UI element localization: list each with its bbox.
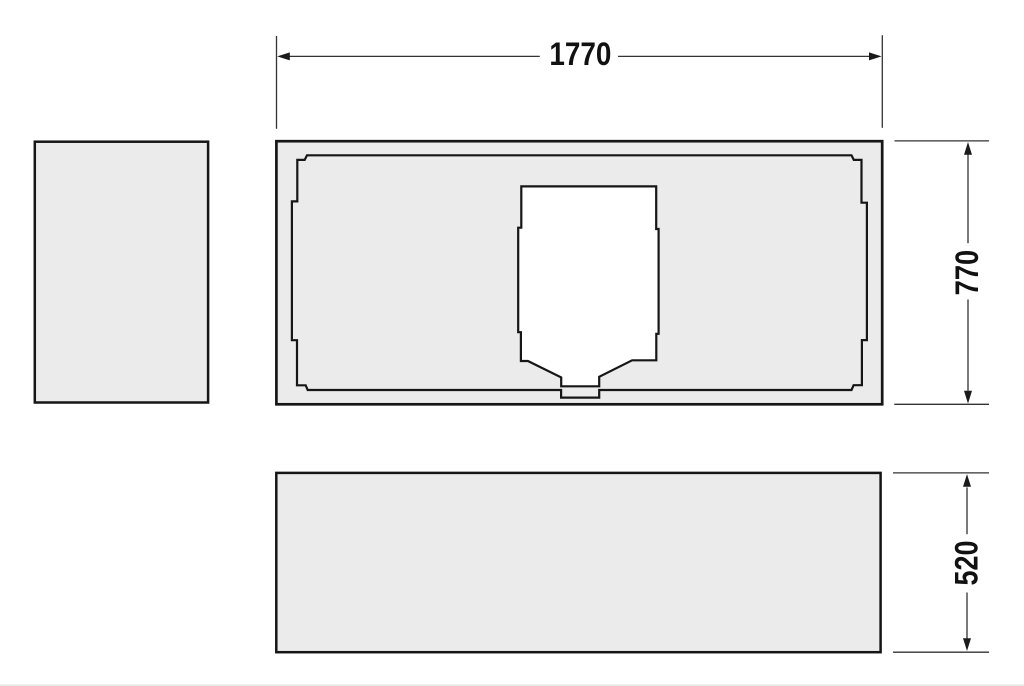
svg-text:520: 520: [948, 541, 984, 586]
svg-text:1770: 1770: [549, 36, 611, 72]
svg-text:770: 770: [949, 250, 985, 296]
